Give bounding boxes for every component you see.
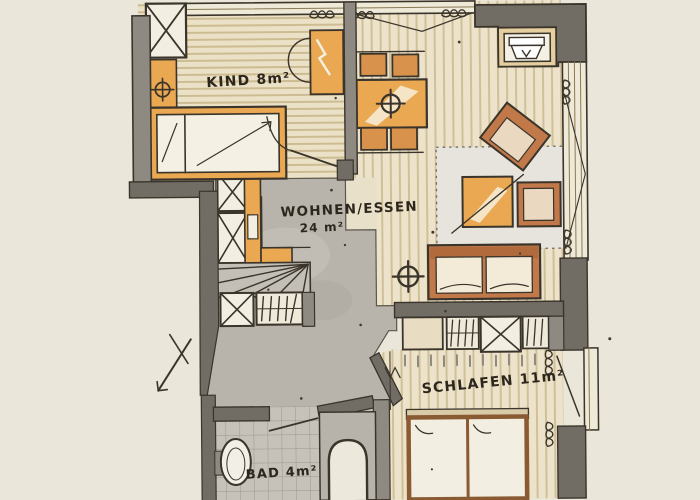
chair — [391, 127, 417, 149]
closet-hatch — [523, 316, 549, 348]
schlafen-top-wall — [394, 301, 563, 317]
armchair — [517, 182, 560, 226]
sketch-arrow — [157, 334, 191, 390]
stair-cabinet-niche — [248, 215, 258, 239]
wall-hatch-box — [481, 317, 521, 352]
plan-body: KIND 8m² WOHNEN/ESSEN 24 m² SCHLAFEN 11m… — [128, 0, 613, 500]
wall-hatch-box — [220, 293, 253, 326]
built-in-closets — [403, 316, 564, 352]
schlafen-right-wall — [558, 426, 587, 498]
wall-hatch-box — [218, 213, 248, 263]
wall-hatch-box — [146, 3, 186, 57]
schlafen-left-line — [390, 352, 391, 410]
under-stair-closet — [256, 292, 302, 324]
chair — [361, 128, 387, 150]
kind-left-wall — [132, 16, 152, 188]
chair — [360, 54, 386, 76]
kind-bed — [149, 107, 287, 180]
floor-plan-scan: KIND 8m² WOHNEN/ESSEN 24 m² SCHLAFEN 11m… — [0, 0, 700, 500]
wall-cap — [337, 160, 353, 180]
living-window — [562, 62, 588, 260]
tv-cabinet — [498, 27, 556, 67]
wall-stub — [302, 292, 314, 326]
kind-dining-wall — [344, 2, 358, 174]
wohnen-area-label: 24 m² — [299, 220, 344, 236]
coffee-table — [451, 174, 524, 233]
closet-hatch — [447, 317, 479, 349]
sofa — [428, 244, 540, 299]
double-bed — [406, 408, 529, 499]
stair-cabinet-foot — [261, 248, 292, 264]
shower — [319, 412, 376, 500]
chair — [392, 54, 418, 76]
floor-plan-drawing: KIND 8m² WOHNEN/ESSEN 24 m² SCHLAFEN 11m… — [0, 0, 700, 500]
bad-top-wall-left — [213, 407, 269, 421]
